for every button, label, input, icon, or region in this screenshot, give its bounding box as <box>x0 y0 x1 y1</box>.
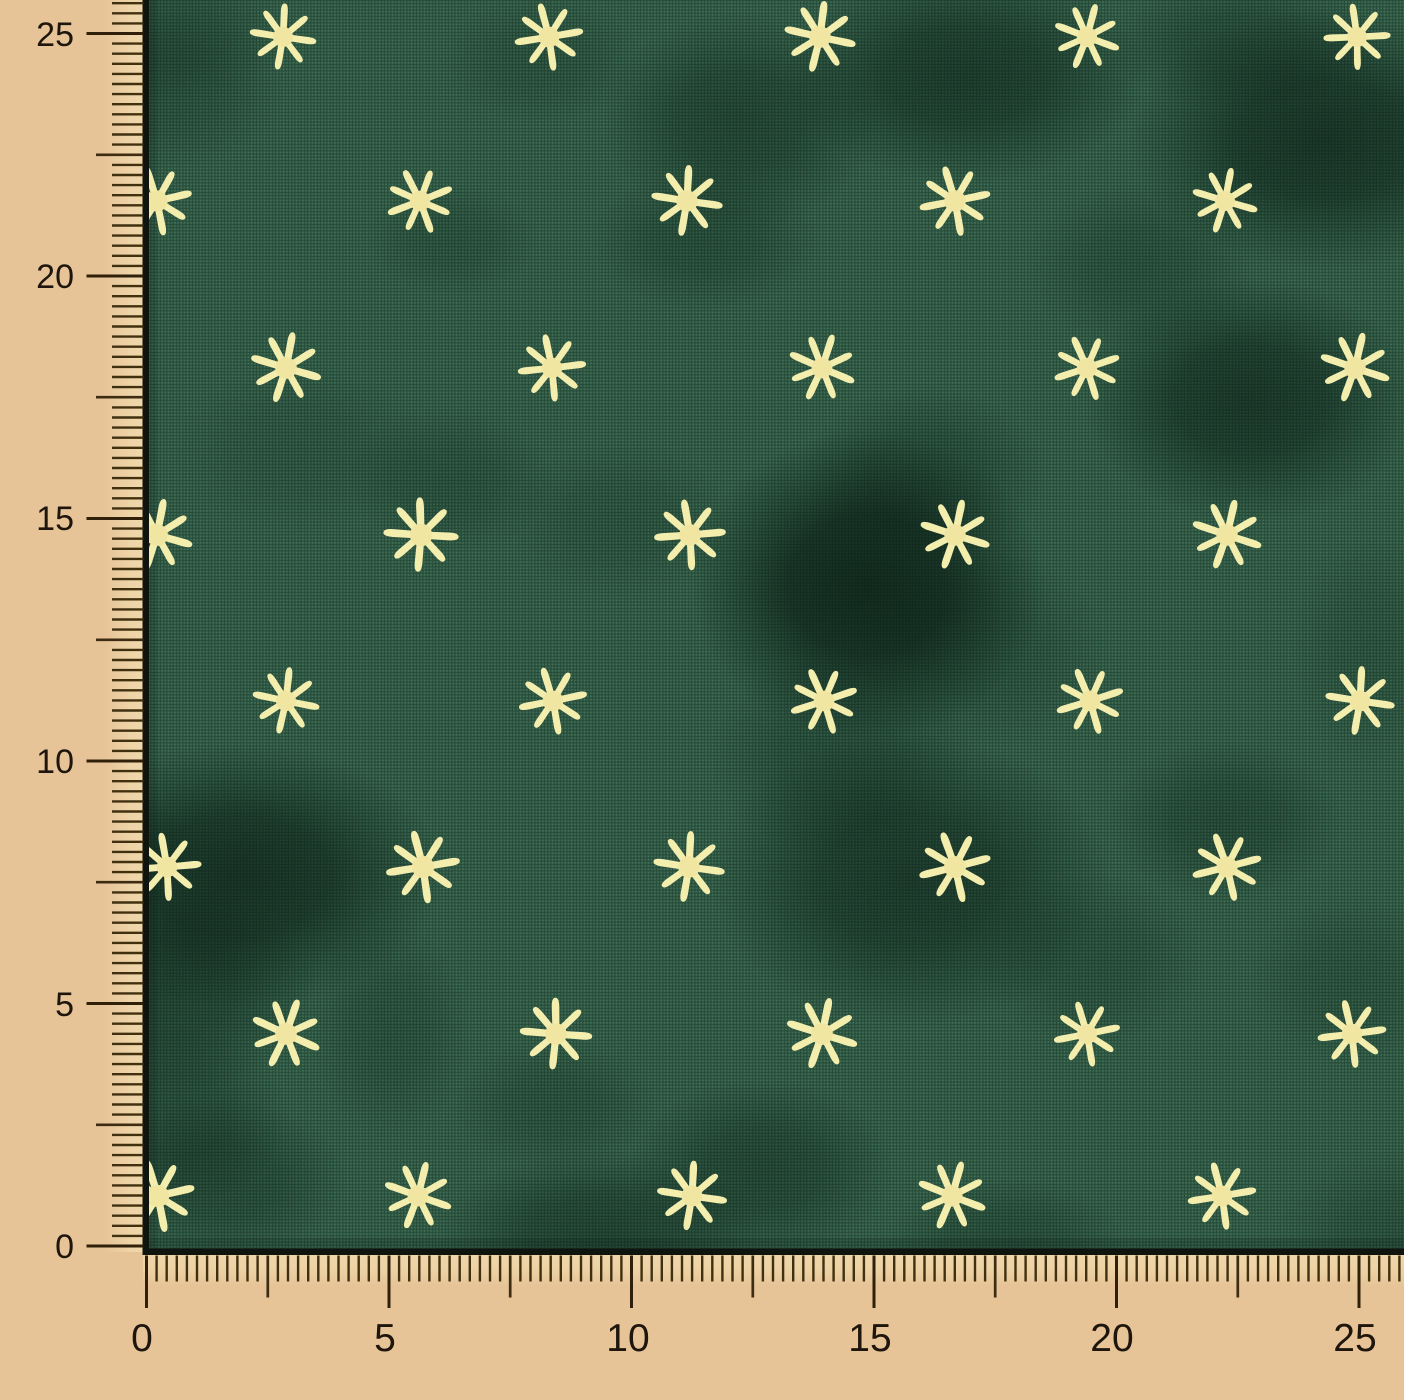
svg-text:25: 25 <box>36 16 74 54</box>
svg-text:0: 0 <box>55 1228 74 1266</box>
svg-text:15: 15 <box>848 1317 891 1360</box>
svg-text:10: 10 <box>606 1317 649 1360</box>
svg-text:5: 5 <box>374 1317 396 1360</box>
svg-text:10: 10 <box>36 743 74 781</box>
svg-text:5: 5 <box>55 986 74 1024</box>
svg-text:20: 20 <box>1090 1317 1133 1360</box>
svg-text:25: 25 <box>1333 1317 1376 1360</box>
svg-text:15: 15 <box>36 500 74 538</box>
svg-text:20: 20 <box>36 258 74 296</box>
svg-text:0: 0 <box>131 1317 153 1360</box>
